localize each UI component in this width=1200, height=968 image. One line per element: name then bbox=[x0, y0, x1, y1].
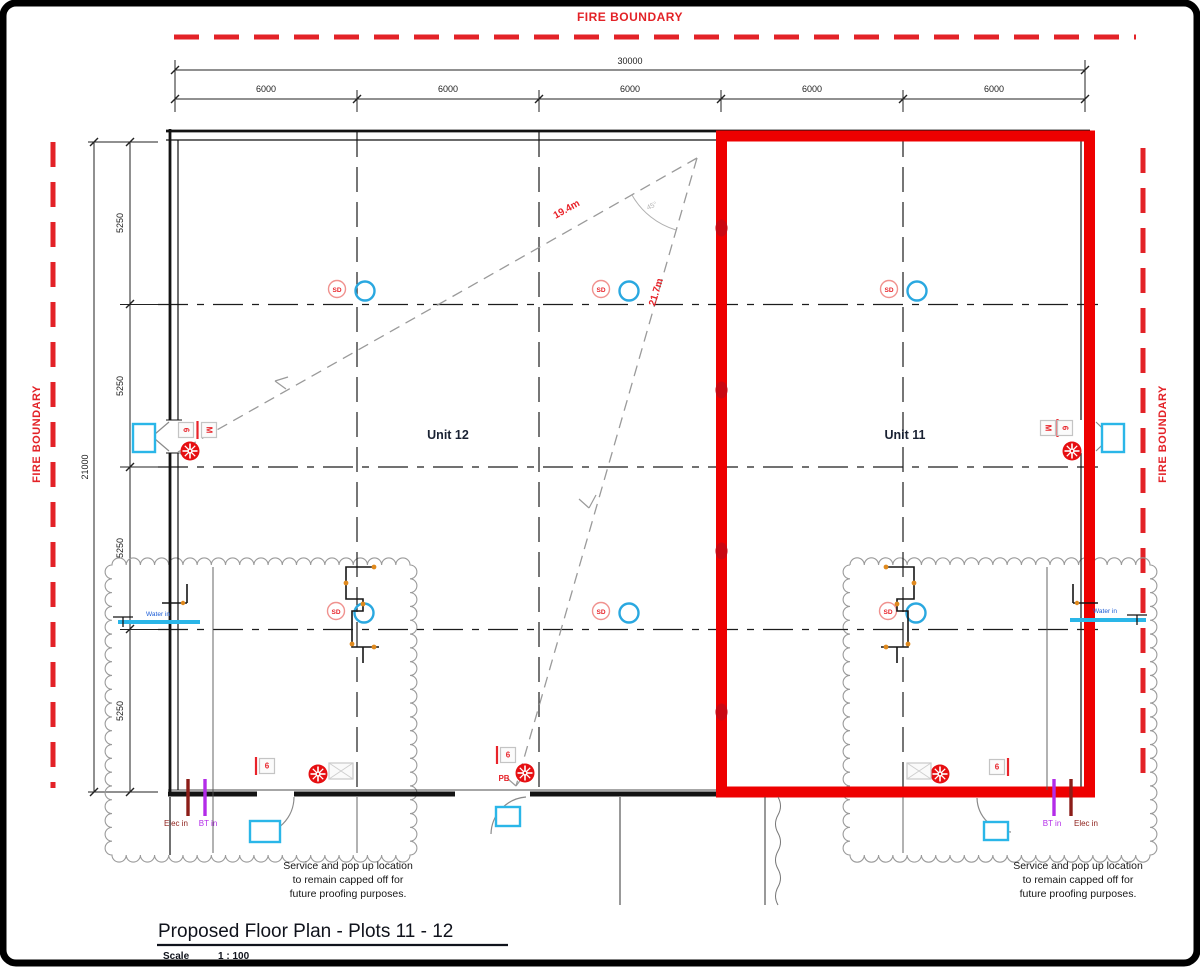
dim-bay: 6000 bbox=[802, 84, 822, 94]
dim-overall-width: 30000 bbox=[617, 56, 642, 66]
structural-grid bbox=[158, 132, 1098, 790]
water-in-label: Water in bbox=[146, 611, 170, 618]
dim-bay: 5250 bbox=[115, 538, 125, 558]
wall-joint-marker bbox=[716, 543, 728, 560]
svg-text:SD: SD bbox=[596, 287, 605, 294]
equipment-box-glyph: M bbox=[205, 427, 214, 434]
unit12-label: Unit 12 bbox=[427, 428, 469, 442]
fire-boundary-label-top: FIRE BOUNDARY bbox=[577, 10, 683, 24]
dimensions-top: 30000 6000 6000 6000 6000 6000 bbox=[171, 56, 1089, 112]
floor-plan-canvas: FIRE BOUNDARY FIRE BOUNDARY FIRE BOUNDAR… bbox=[0, 0, 1200, 968]
svg-text:SD: SD bbox=[332, 287, 341, 294]
detector-head-icon bbox=[907, 604, 926, 623]
diagonal-measurements: 45° 19.4m 21.7m bbox=[178, 158, 697, 786]
equipment-box-glyph: 6 bbox=[995, 763, 1000, 772]
detector-head-icon bbox=[620, 282, 639, 301]
smoke-detector: SD bbox=[329, 281, 375, 301]
svg-text:SD: SD bbox=[883, 609, 892, 616]
external-fitting-box bbox=[984, 822, 1008, 840]
sounder-icon bbox=[1063, 442, 1082, 461]
service-note-line: future proofing purposes. bbox=[1020, 888, 1137, 900]
title-block: Proposed Floor Plan - Plots 11 - 12 Scal… bbox=[157, 921, 508, 962]
sounder-icon bbox=[931, 765, 950, 784]
service-note-line: Service and pop up location bbox=[283, 860, 413, 872]
angle-label: 45° bbox=[645, 200, 658, 212]
detector-head-icon bbox=[356, 282, 375, 301]
fire-boundary-label-left: FIRE BOUNDARY bbox=[31, 385, 43, 483]
dimensions-left: 21000 5250 5250 5250 5250 bbox=[80, 138, 158, 796]
external-fitting-box bbox=[250, 821, 280, 842]
service-note-line: to remain capped off for bbox=[1023, 874, 1134, 886]
riser-details bbox=[162, 565, 1098, 663]
service-note-line: to remain capped off for bbox=[293, 874, 404, 886]
water-in-label: Water in bbox=[1093, 608, 1117, 615]
smoke-detector: SD bbox=[593, 603, 639, 623]
dim-bay: 6000 bbox=[256, 84, 276, 94]
building-walls bbox=[166, 129, 1090, 794]
bt-in-label: BT in bbox=[1043, 819, 1062, 828]
envelope-symbols bbox=[329, 763, 931, 779]
bt-in-label: BT in bbox=[199, 819, 218, 828]
service-cloud-left bbox=[105, 558, 417, 862]
svg-text:SD: SD bbox=[884, 287, 893, 294]
unit11-red-rectangle bbox=[722, 136, 1090, 792]
external-fitting-box bbox=[1102, 424, 1124, 452]
dim-bay: 5250 bbox=[115, 701, 125, 721]
external-fitting-box bbox=[133, 424, 155, 452]
equipment-box-glyph: 6 bbox=[182, 428, 191, 433]
scale-value: 1 : 100 bbox=[218, 951, 250, 962]
equipment-box-glyph: 6 bbox=[1061, 426, 1070, 431]
detector-head-icon bbox=[355, 604, 374, 623]
wall-joint-marker bbox=[716, 382, 728, 399]
smoke-detector: SD bbox=[328, 603, 374, 623]
elec-in-label: Elec in bbox=[164, 819, 188, 828]
wall-joint-marker bbox=[716, 220, 728, 237]
sounder-icon bbox=[181, 442, 200, 461]
elec-in-label: Elec in bbox=[1074, 819, 1098, 828]
service-note-line: future proofing purposes. bbox=[290, 888, 407, 900]
diagonal-distance-1: 19.4m bbox=[552, 198, 582, 221]
diagonal-distance-2: 21.7m bbox=[647, 277, 666, 307]
equipment-box-glyph: M bbox=[1044, 425, 1053, 432]
smoke-detector: SD bbox=[593, 281, 639, 301]
drawing-title: Proposed Floor Plan - Plots 11 - 12 bbox=[158, 921, 453, 942]
dim-bay: 5250 bbox=[115, 376, 125, 396]
detector-head-icon bbox=[908, 282, 927, 301]
dim-bay: 6000 bbox=[438, 84, 458, 94]
envelope-icon bbox=[907, 763, 931, 779]
equipment-boxes: 6 M M 6 6 6 PB 6 bbox=[179, 419, 1073, 783]
detector-head-icon bbox=[620, 604, 639, 623]
envelope-icon bbox=[329, 763, 353, 779]
alarm-sounders bbox=[181, 442, 1082, 784]
fire-boundary-label-right: FIRE BOUNDARY bbox=[1157, 385, 1169, 483]
sounder-icon bbox=[516, 764, 535, 783]
service-notes: Service and pop up location to remain ca… bbox=[283, 860, 1143, 900]
wall-joint-marker bbox=[716, 704, 728, 721]
scale-label: Scale bbox=[163, 951, 190, 962]
sounder-icon bbox=[309, 765, 328, 784]
dim-bay: 5250 bbox=[115, 213, 125, 233]
external-fitting-box bbox=[496, 807, 520, 826]
equipment-box-glyph: 6 bbox=[265, 762, 270, 771]
angle-arc bbox=[632, 195, 676, 230]
dim-bay: 6000 bbox=[620, 84, 640, 94]
below-wall-lines bbox=[170, 567, 1047, 905]
fire-boundary-lines: FIRE BOUNDARY FIRE BOUNDARY FIRE BOUNDAR… bbox=[31, 10, 1169, 788]
service-note-line: Service and pop up location bbox=[1013, 860, 1143, 872]
push-button-label: PB bbox=[498, 774, 509, 783]
drawing-sheet: FIRE BOUNDARY FIRE BOUNDARY FIRE BOUNDAR… bbox=[0, 0, 1200, 968]
equipment-box-glyph: 6 bbox=[506, 751, 511, 760]
unit11-label: Unit 11 bbox=[885, 428, 926, 442]
svg-text:SD: SD bbox=[331, 609, 340, 616]
dim-overall-height: 21000 bbox=[80, 454, 90, 479]
svg-text:SD: SD bbox=[596, 609, 605, 616]
dim-bay: 6000 bbox=[984, 84, 1004, 94]
doors-and-fittings bbox=[133, 422, 1124, 842]
